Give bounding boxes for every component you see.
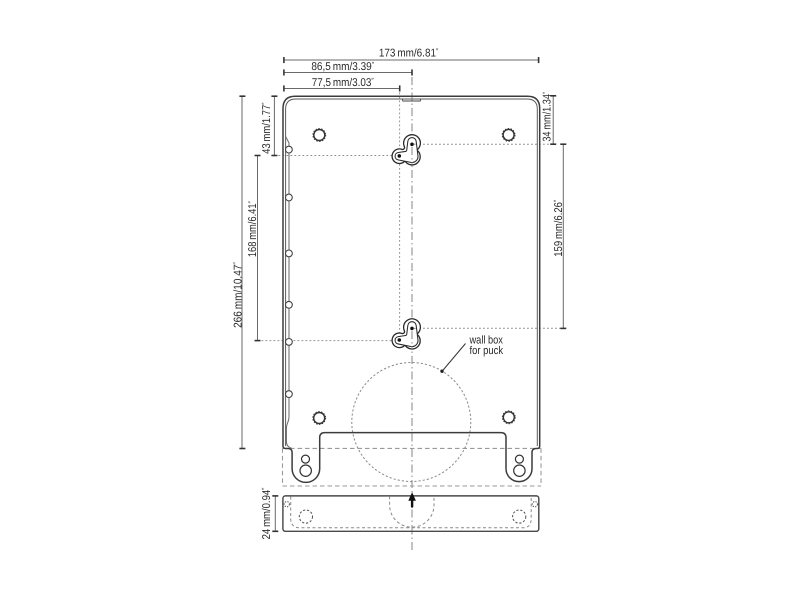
svg-text:24 mm/0.94″: 24 mm/0.94″ bbox=[260, 487, 273, 539]
svg-text:77,5 mm/3.03″: 77,5 mm/3.03″ bbox=[312, 76, 374, 89]
svg-text:for puck: for puck bbox=[470, 345, 504, 357]
svg-text:43 mm/1.77″: 43 mm/1.77″ bbox=[260, 102, 273, 154]
svg-text:168 mm/6.41″: 168 mm/6.41″ bbox=[246, 201, 259, 257]
svg-text:159 mm/6.26″: 159 mm/6.26″ bbox=[552, 200, 565, 257]
svg-text:34 mm/1.34″: 34 mm/1.34″ bbox=[541, 92, 554, 142]
svg-text:266 mm/10.47″: 266 mm/10.47″ bbox=[232, 262, 245, 328]
svg-text:86,5 mm/3.39″: 86,5 mm/3.39″ bbox=[311, 60, 374, 73]
svg-text:173 mm/6.81″: 173 mm/6.81″ bbox=[379, 47, 439, 60]
